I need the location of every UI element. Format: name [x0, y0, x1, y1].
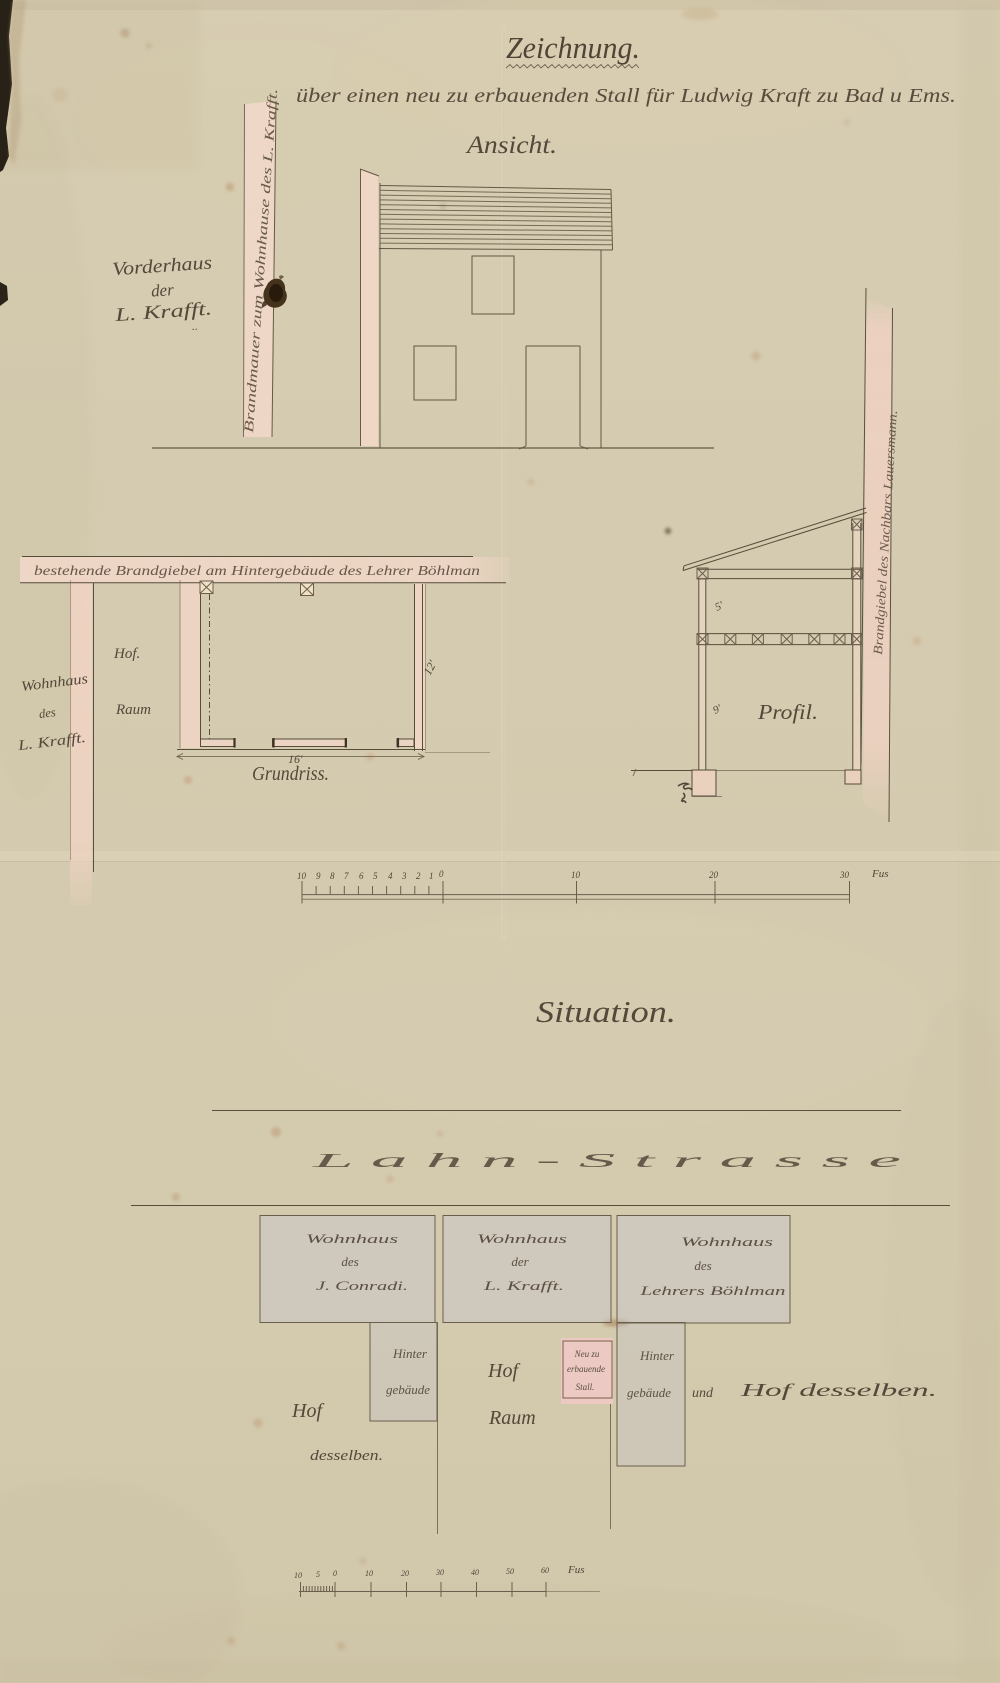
svg-text:1: 1 [429, 871, 434, 881]
svg-text:10: 10 [294, 1571, 302, 1580]
svg-text:erbauende: erbauende [567, 1364, 605, 1374]
svg-text:Wohnhaus: Wohnhaus [477, 1231, 567, 1246]
svg-text:Raum: Raum [115, 702, 151, 718]
svg-text:Lehrers Böhlman: Lehrers Böhlman [639, 1283, 786, 1298]
svg-text:gebäude: gebäude [627, 1385, 671, 1400]
svg-text:gebäude: gebäude [386, 1382, 430, 1397]
svg-text:bestehende Brandgiebel am Hint: bestehende Brandgiebel am Hintergebäude … [34, 563, 480, 578]
svg-text:..: .. [192, 319, 198, 333]
svg-text:Hinter: Hinter [639, 1348, 675, 1363]
svg-text:10: 10 [365, 1569, 373, 1578]
svg-text:Situation.: Situation. [536, 994, 676, 1029]
svg-text:6: 6 [359, 871, 364, 881]
svg-text:5: 5 [316, 1570, 320, 1579]
svg-text:9: 9 [316, 871, 321, 881]
svg-text:Hof desselben.: Hof desselben. [739, 1380, 937, 1400]
svg-text:7: 7 [344, 871, 349, 881]
svg-text:Ansicht.: Ansicht. [465, 132, 557, 159]
svg-text:des: des [38, 705, 56, 721]
svg-text:Wohnhaus: Wohnhaus [681, 1234, 773, 1249]
svg-text:der: der [511, 1254, 529, 1269]
svg-text:30: 30 [839, 870, 850, 880]
svg-text:Profil.: Profil. [757, 700, 818, 724]
svg-text:8: 8 [330, 871, 335, 881]
svg-text:40: 40 [471, 1568, 479, 1577]
svg-text:und: und [692, 1386, 714, 1401]
svg-text:0: 0 [439, 869, 444, 879]
svg-text:4: 4 [388, 871, 393, 881]
svg-text:30: 30 [435, 1568, 444, 1577]
svg-text:20: 20 [401, 1569, 409, 1578]
svg-text:über einen neu zu erbauenden S: über einen neu zu erbauenden Stall für L… [296, 85, 956, 107]
svg-text:10: 10 [571, 870, 581, 880]
svg-text:20: 20 [709, 870, 719, 880]
svg-text:Zeichnung.: Zeichnung. [506, 30, 640, 65]
svg-text:2: 2 [416, 871, 421, 881]
svg-text:Grundriss.: Grundriss. [252, 763, 329, 785]
svg-text:Hof: Hof [487, 1360, 520, 1382]
svg-text:Neu zu: Neu zu [574, 1349, 600, 1359]
svg-text:10: 10 [297, 871, 307, 881]
svg-text:60: 60 [541, 1566, 549, 1575]
svg-text:Hof: Hof [291, 1400, 324, 1422]
svg-text:3: 3 [401, 871, 407, 881]
svg-text:Wohnhaus: Wohnhaus [306, 1231, 398, 1246]
svg-text:des: des [694, 1258, 711, 1273]
svg-text:L. Krafft.: L. Krafft. [482, 1278, 564, 1293]
svg-text:desselben.: desselben. [310, 1448, 383, 1464]
svg-text:Hinter: Hinter [392, 1346, 428, 1361]
svg-text:Hof.: Hof. [113, 646, 140, 662]
svg-text:50: 50 [506, 1567, 514, 1576]
svg-text:J. Conradi.: J. Conradi. [316, 1278, 408, 1293]
svg-text:Stall.: Stall. [576, 1382, 595, 1392]
svg-text:L a h n - S t r a s s e: L a h n - S t r a s s e [309, 1150, 901, 1172]
svg-text:5: 5 [373, 871, 378, 881]
svg-text:Fus: Fus [871, 868, 889, 880]
svg-text:0: 0 [333, 1569, 337, 1578]
svg-text:Raum: Raum [488, 1407, 536, 1429]
svg-text:Fus: Fus [567, 1564, 585, 1576]
svg-text:der: der [150, 280, 174, 301]
svg-text:des: des [341, 1254, 358, 1269]
